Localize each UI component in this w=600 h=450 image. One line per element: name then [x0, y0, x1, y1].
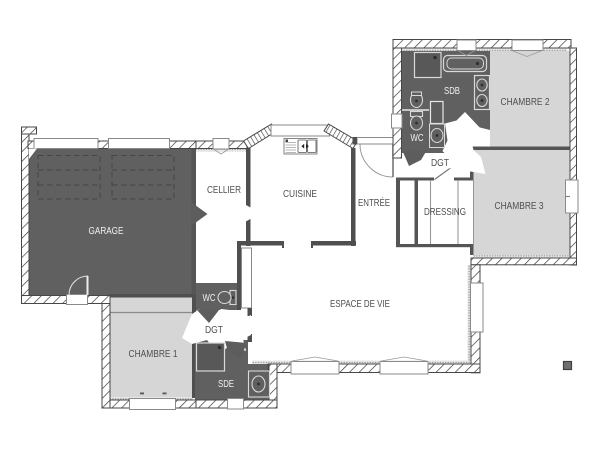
svg-text:CHAMBRE 3: CHAMBRE 3 [495, 201, 544, 212]
svg-text:CHAMBRE 2: CHAMBRE 2 [501, 97, 550, 108]
svg-text:SDE: SDE [218, 379, 234, 390]
svg-text:WC: WC [411, 133, 424, 144]
svg-text:CELLIER: CELLIER [207, 185, 241, 196]
svg-text:CUISINE: CUISINE [283, 189, 317, 200]
svg-text:GARAGE: GARAGE [89, 226, 124, 237]
svg-text:WC: WC [203, 293, 216, 304]
svg-text:ENTRÉE: ENTRÉE [358, 196, 390, 209]
svg-text:DGT: DGT [431, 158, 449, 169]
svg-text:DRESSING: DRESSING [424, 207, 466, 218]
svg-text:SDB: SDB [444, 86, 460, 97]
svg-text:CHAMBRE 1: CHAMBRE 1 [129, 349, 178, 360]
svg-text:ESPACE DE VIE: ESPACE DE VIE [330, 299, 390, 310]
svg-text:DGT: DGT [205, 325, 223, 336]
